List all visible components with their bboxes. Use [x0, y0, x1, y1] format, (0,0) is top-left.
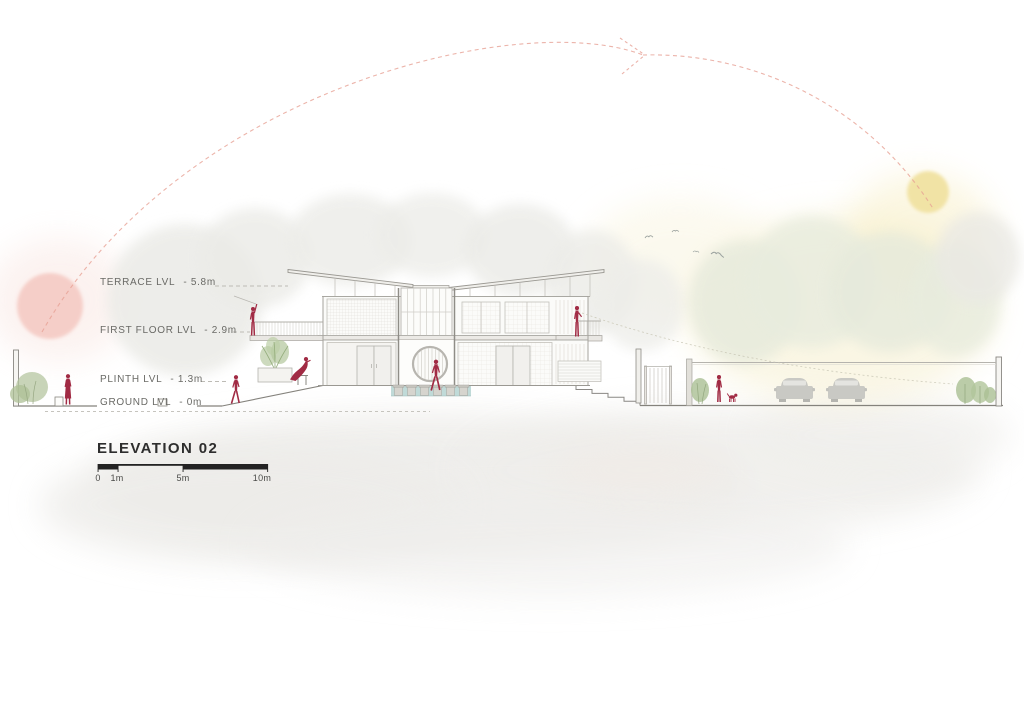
elevation-drawing: [0, 0, 1024, 724]
sun-path-arrow-icon: [620, 38, 645, 74]
level-value: - 0m: [179, 397, 202, 408]
person-icon: [290, 357, 311, 381]
level-value: - 2.9m: [204, 325, 237, 336]
scale-tick-5m: 5m: [176, 473, 189, 483]
scale-tick-1m: 1m: [110, 473, 123, 483]
level-label-ground: GROUND LVL - 0m: [100, 397, 202, 408]
upper-jali-screen: [327, 299, 396, 336]
person-icon: [717, 375, 722, 402]
level-value: - 1.3m: [170, 374, 203, 385]
louver-fence: [558, 361, 601, 382]
water-court: [391, 385, 471, 396]
curb-stub: [55, 397, 63, 406]
upper-center-glazing: [401, 288, 452, 336]
planter-box: [258, 368, 292, 382]
stair-wall: [636, 349, 641, 403]
elevation-drawing-canvas: TERRACE LVL - 5.8m FIRST FLOOR LVL - 2.9…: [0, 0, 1024, 724]
scale-tick-10m: 10m: [253, 473, 271, 483]
level-name: FIRST FLOOR LVL: [100, 325, 196, 336]
sun-icon: [907, 171, 949, 213]
planter-plant: [258, 337, 292, 382]
level-label-first-floor: FIRST FLOOR LVL - 2.9m: [100, 325, 237, 336]
ground-right-doors: [496, 346, 530, 386]
level-label-terrace: TERRACE LVL - 5.8m: [100, 277, 216, 288]
dawn-circle-icon: [17, 273, 83, 339]
entry-gate: [644, 366, 672, 404]
level-label-plinth: PLINTH LVL - 1.3m: [100, 374, 203, 385]
drawing-title: ELEVATION 02: [97, 440, 218, 457]
bush: [691, 378, 709, 404]
left-balcony: [250, 322, 323, 341]
level-value: - 5.8m: [183, 277, 216, 288]
level-name: PLINTH LVL: [100, 374, 162, 385]
water: [391, 386, 471, 396]
bush: [956, 377, 996, 404]
scale-tick-0: 0: [95, 473, 100, 483]
dog-icon: [727, 394, 737, 403]
level-name: GROUND LVL: [100, 397, 171, 408]
upper-windows: [462, 302, 549, 333]
level-name: TERRACE LVL: [100, 277, 175, 288]
parking-pillar: [687, 359, 693, 406]
moon-gate: [413, 347, 447, 381]
person-icon: [65, 374, 71, 404]
right-boundary-wall: [996, 357, 1002, 406]
person-icon: [232, 375, 240, 403]
ground-left-doors: [357, 346, 391, 386]
